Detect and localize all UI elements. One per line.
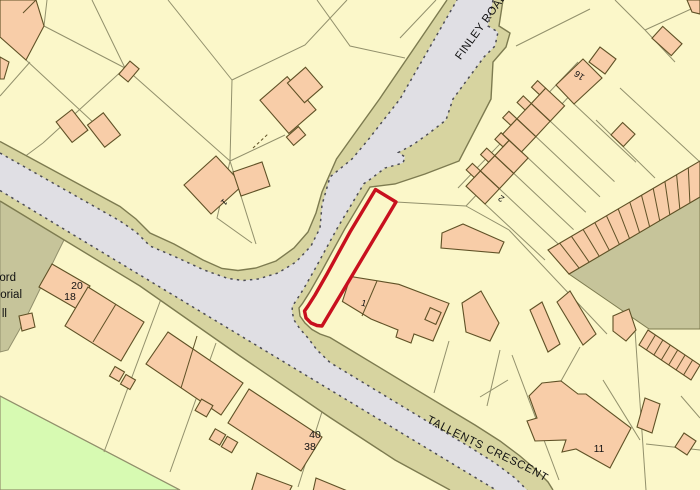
svg-text:18: 18 [64, 291, 76, 303]
svg-text:ll: ll [2, 308, 7, 320]
svg-text:11: 11 [594, 444, 605, 455]
svg-text:ord: ord [0, 272, 16, 284]
svg-text:40: 40 [309, 429, 321, 441]
svg-text:38: 38 [304, 441, 316, 453]
svg-text:orial: orial [0, 289, 22, 301]
